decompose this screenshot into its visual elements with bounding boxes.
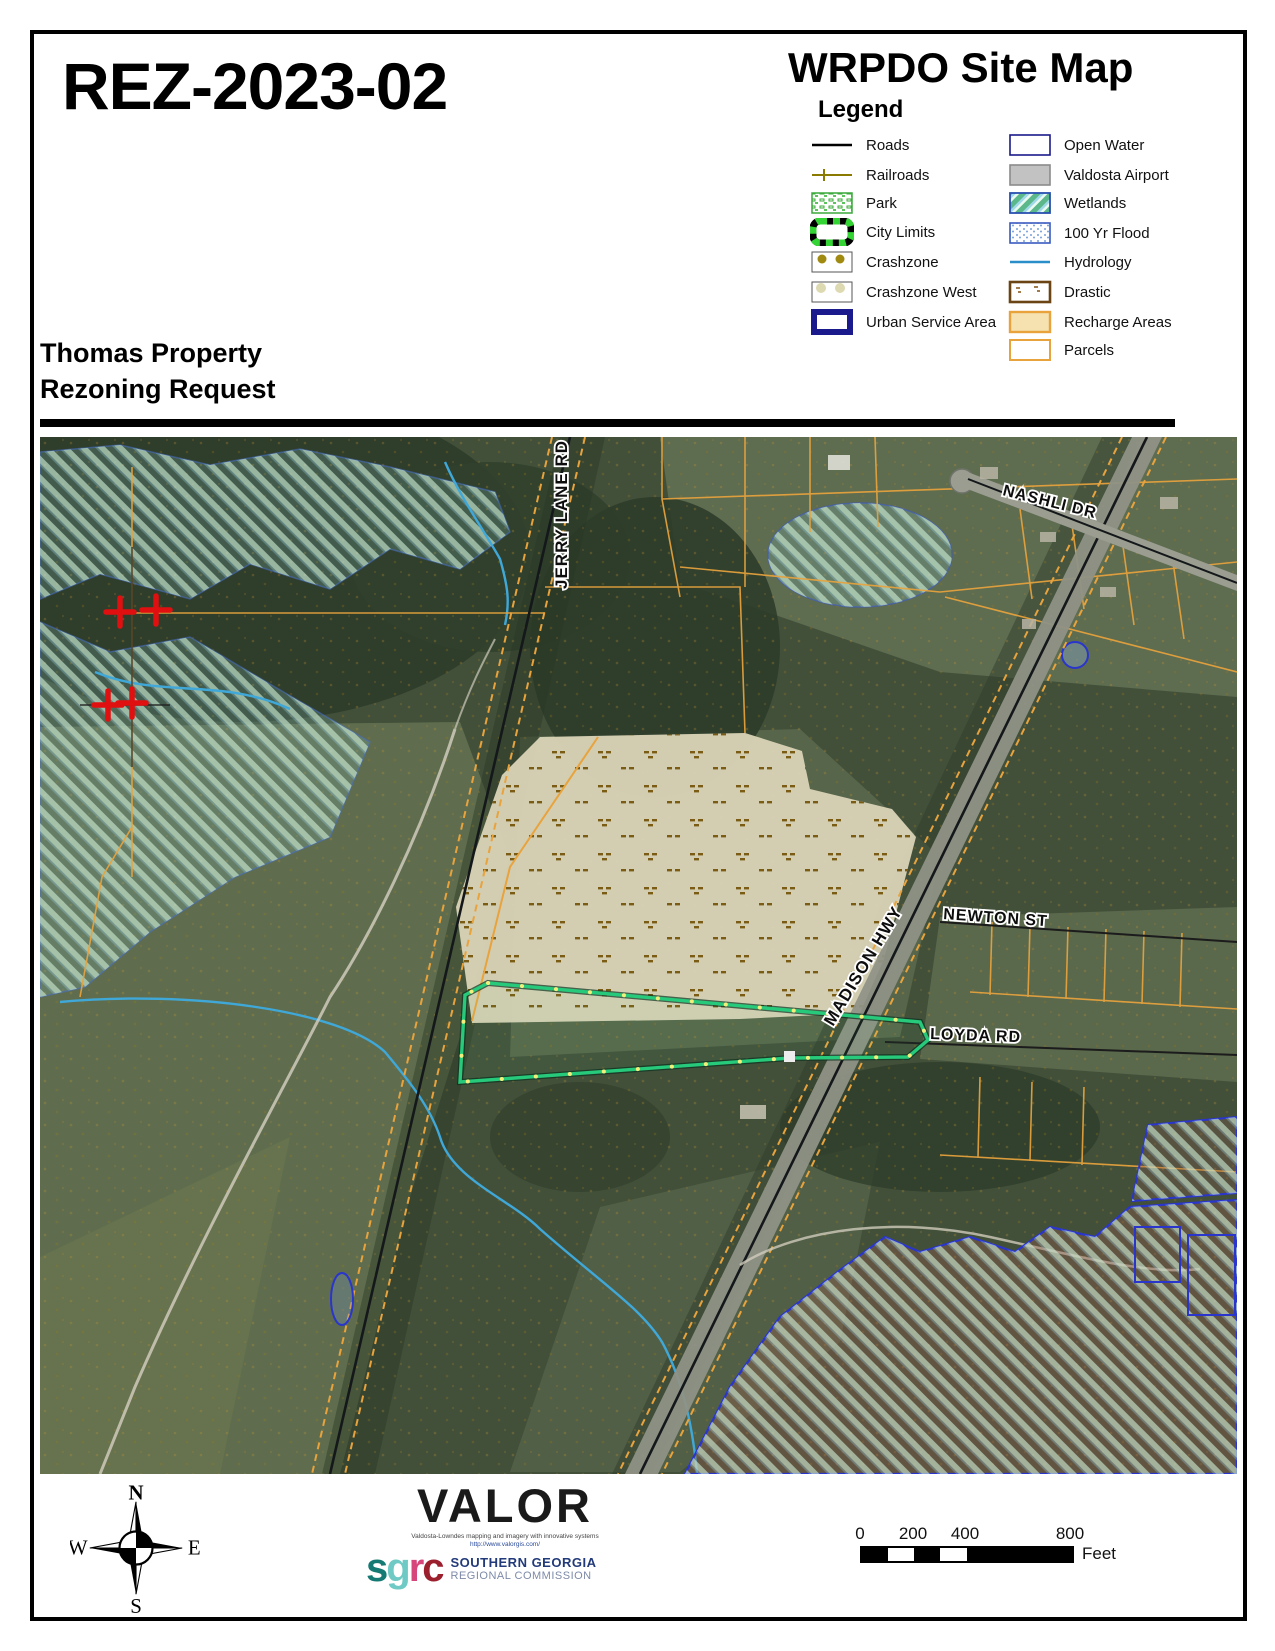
legend-item-crashzone: Crashzone bbox=[810, 250, 939, 274]
road-line-icon bbox=[810, 133, 854, 157]
compass-star bbox=[90, 1502, 182, 1594]
urban-service-area-swatch-icon bbox=[810, 310, 854, 334]
case-number-title: REZ-2023-02 bbox=[62, 48, 447, 124]
jerry-lane-rd-label: JERRY LANE RD bbox=[552, 440, 571, 589]
drastic-swatch-icon bbox=[1008, 280, 1052, 304]
compass-s: S bbox=[130, 1594, 142, 1614]
subtitle-line2: Rezoning Request bbox=[40, 374, 276, 405]
building-in-parcel bbox=[784, 1051, 795, 1062]
legend-item-park: Park bbox=[810, 191, 897, 215]
compass-w: W bbox=[70, 1536, 88, 1560]
recharge-swatch-icon bbox=[1008, 310, 1052, 334]
compass-n: N bbox=[128, 1482, 143, 1505]
sgrc-name-line1: SOUTHERN GEORGIA bbox=[451, 1555, 597, 1570]
legend-item-hydrology: Hydrology bbox=[1008, 250, 1132, 274]
crashzone-swatch-icon bbox=[810, 250, 854, 274]
small-pond bbox=[331, 1273, 353, 1325]
hydrology-line-icon bbox=[1008, 250, 1052, 274]
scale-bar: 0 200 400 800 Feet bbox=[860, 1524, 1180, 1563]
scale-bar-graphic bbox=[860, 1546, 1074, 1563]
wetlands-swatch-icon bbox=[1008, 191, 1052, 215]
city-limits-swatch-icon bbox=[810, 220, 854, 244]
legend-item-crashzone-west: Crashzone West bbox=[810, 280, 977, 304]
sgrc-logo: sgrc SOUTHERN GEORGIA REGIONAL COMMISSIO… bbox=[366, 1552, 596, 1584]
legend-item-valdosta-airport: Valdosta Airport bbox=[1008, 163, 1169, 187]
valor-tagline: Valdosta-Lowndes mapping and imagery wit… bbox=[360, 1533, 650, 1540]
title-divider-rule bbox=[40, 419, 1175, 427]
legend-item-roads: Roads bbox=[810, 133, 909, 157]
sgrc-name-line2: REGIONAL COMMISSION bbox=[451, 1570, 597, 1582]
legend-title: Legend bbox=[818, 96, 903, 124]
flood-swatch-icon bbox=[1008, 221, 1052, 245]
subtitle-line1: Thomas Property bbox=[40, 338, 262, 369]
map-title: WRPDO Site Map bbox=[788, 44, 1133, 92]
legend-item-wetlands: Wetlands bbox=[1008, 191, 1126, 215]
north-arrow-compass: N E S W bbox=[70, 1482, 202, 1619]
compass-e: E bbox=[188, 1536, 201, 1560]
page: REZ-2023-02 WRPDO Site Map Legend Roads … bbox=[0, 0, 1275, 1651]
legend-item-open-water: Open Water bbox=[1008, 133, 1144, 157]
sgrc-logo-letters: sgrc bbox=[366, 1552, 443, 1584]
valor-logo-text: VALOR bbox=[360, 1482, 650, 1529]
scale-bar-ticks: 0 200 400 800 bbox=[860, 1524, 1180, 1544]
legend-item-urban-service-area: Urban Service Area bbox=[810, 310, 996, 334]
legend-item-100yr-flood: 100 Yr Flood bbox=[1008, 221, 1150, 245]
legend-item-railroads: Railroads bbox=[810, 163, 929, 187]
crashzone-west-swatch-icon bbox=[810, 280, 854, 304]
open-water-swatch-icon bbox=[1008, 133, 1052, 157]
parcels-swatch-icon bbox=[1008, 338, 1052, 362]
site-map: JERRY LANE RD NASHLI DR NEWTON ST MADISO… bbox=[40, 437, 1237, 1474]
legend-item-drastic: Drastic bbox=[1008, 280, 1111, 304]
legend-item-parcels: Parcels bbox=[1008, 338, 1114, 362]
railroad-line-icon bbox=[810, 163, 854, 187]
scale-bar-unit: Feet bbox=[1082, 1544, 1116, 1564]
park-swatch-icon bbox=[810, 191, 854, 215]
airport-swatch-icon bbox=[1008, 163, 1052, 187]
valor-logo: VALOR Valdosta-Lowndes mapping and image… bbox=[360, 1482, 650, 1548]
loyda-rd-label: LOYDA RD bbox=[930, 1026, 1022, 1046]
legend-item-recharge-areas: Recharge Areas bbox=[1008, 310, 1172, 334]
legend-item-city-limits: City Limits bbox=[810, 220, 935, 244]
